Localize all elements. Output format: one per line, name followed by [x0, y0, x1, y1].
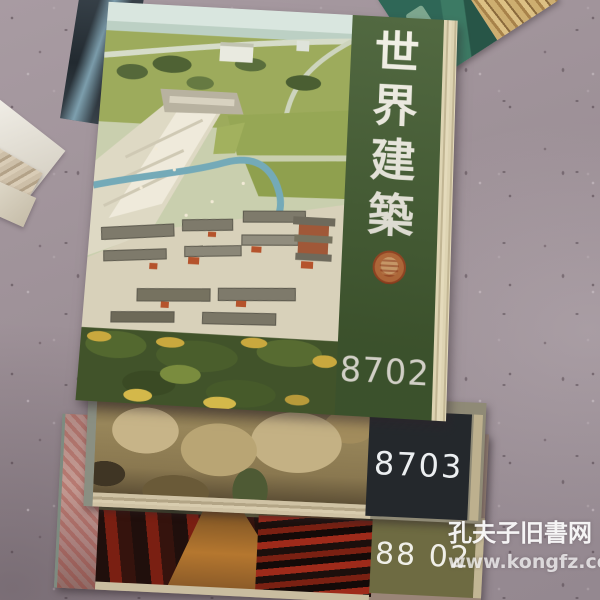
- photo-of-stacked-magazines: 88 02 8703: [0, 0, 600, 600]
- kongfz-watermark: 孔夫子旧書网 www.kongfz.com: [448, 518, 600, 573]
- watermark-site-url: www.kongfz.com: [448, 551, 600, 573]
- magazine-world-architecture-8702: 世 界 建 築 8702: [75, 2, 457, 422]
- watermark-site-name: 孔夫子旧書网: [448, 518, 600, 548]
- red-seal-stamp-icon: [372, 250, 407, 285]
- magazine-title-vertical: 世 界 建 築: [342, 26, 443, 249]
- title-char-4: 築: [343, 188, 439, 244]
- title-strip: 世 界 建 築 8702: [335, 15, 444, 421]
- title-char-1: 世: [350, 26, 444, 79]
- aerial-palace-complex-cover-photo: [75, 2, 352, 415]
- theater-red-seat-rows: [255, 515, 374, 597]
- title-char-2: 界: [348, 79, 442, 133]
- issue-number-8702: 8702: [336, 348, 434, 394]
- issue-panel-8703: 8703: [365, 410, 472, 521]
- title-char-3: 建: [345, 133, 440, 188]
- issue-number-8703: 8703: [373, 444, 464, 486]
